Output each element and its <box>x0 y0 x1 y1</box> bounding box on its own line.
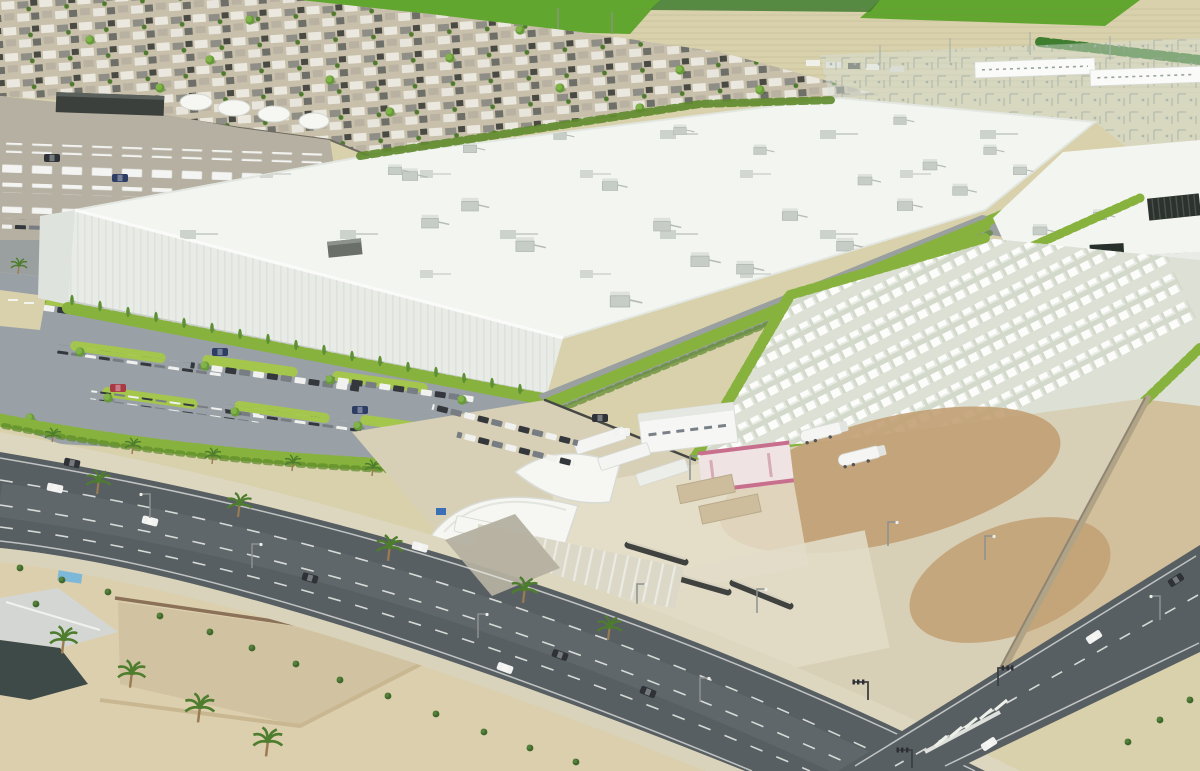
strip-mall-building <box>56 92 165 116</box>
aerial-photo <box>0 0 1200 771</box>
aerial-rendering-canvas <box>0 0 1200 771</box>
parked-car <box>112 174 128 182</box>
parked-car <box>44 154 60 162</box>
